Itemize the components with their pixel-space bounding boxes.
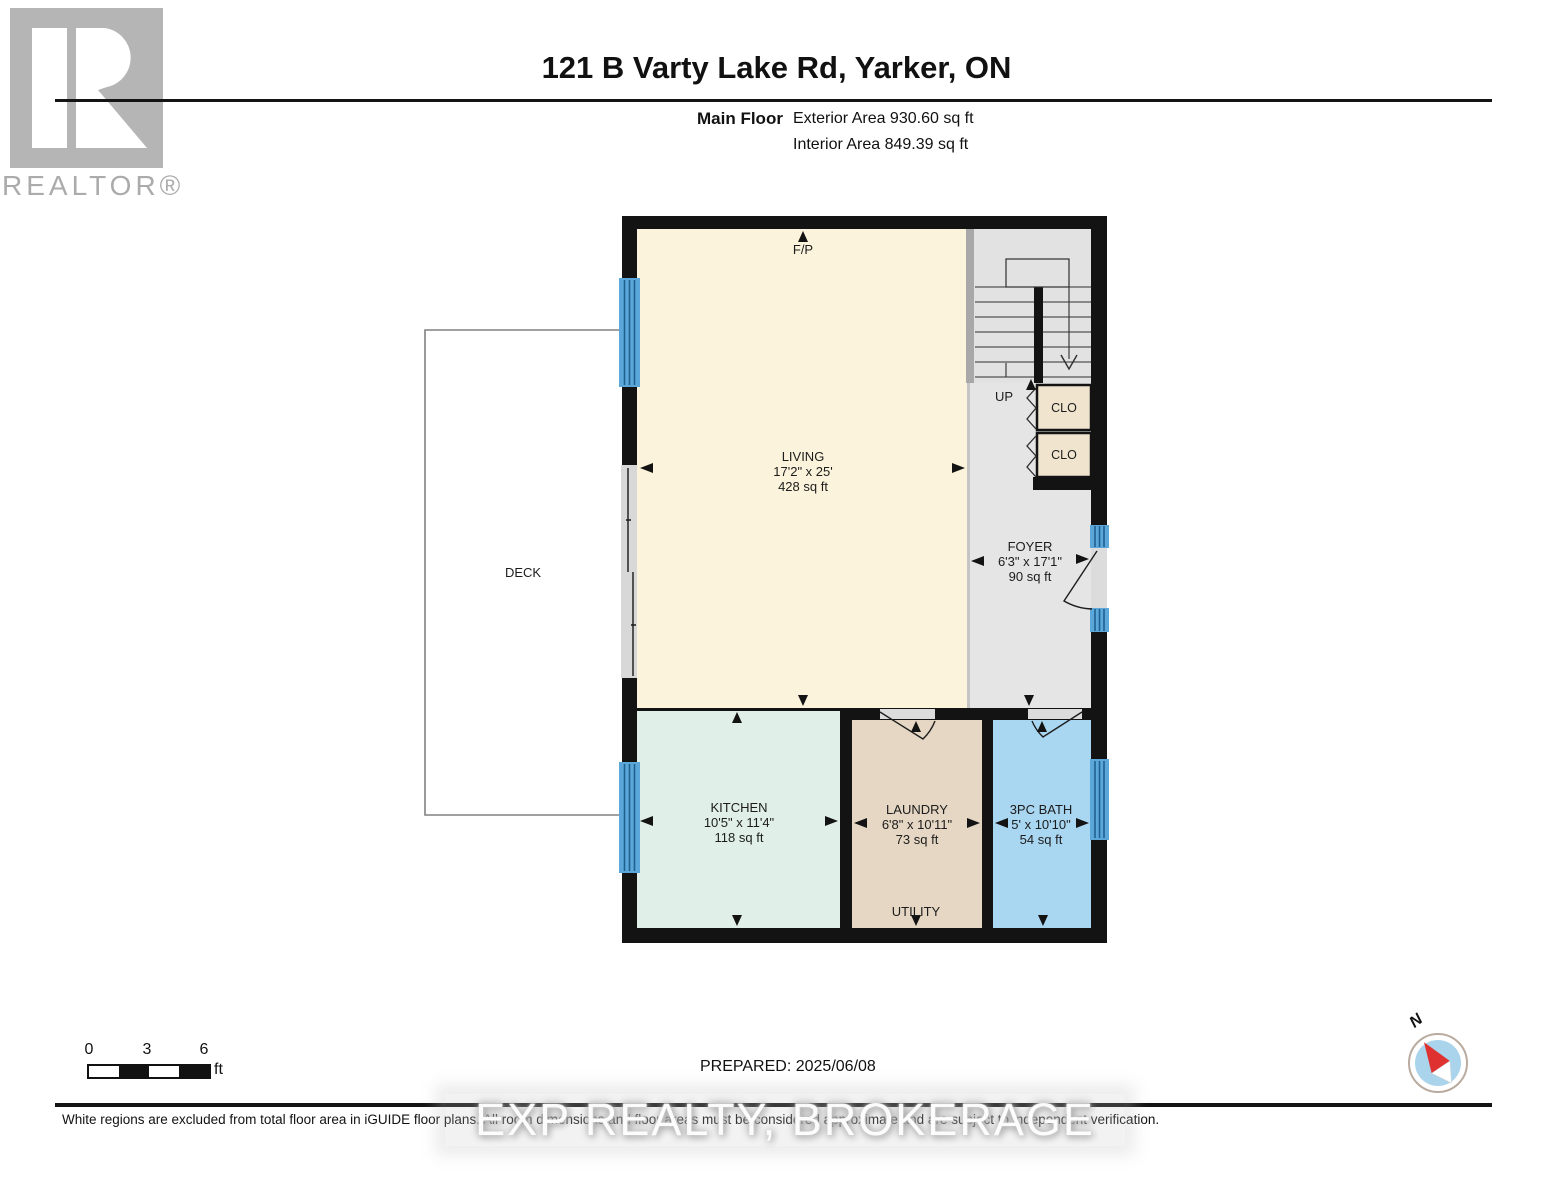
wall-kitchen-laundry: [840, 708, 852, 940]
interior-area-text: Interior Area 849.39 sq ft: [793, 136, 968, 154]
floor-label: Main Floor: [697, 109, 783, 129]
living-foyer-divider: [967, 383, 970, 708]
wall-top: [622, 216, 1107, 229]
scale-segment: [89, 1066, 119, 1077]
closet-1-label: CLO: [1051, 401, 1077, 415]
prepared-date: PREPARED: 2025/06/08: [700, 1058, 876, 1076]
kitchen-label: KITCHEN: [710, 800, 767, 815]
living-dims: 17'2" x 25': [773, 464, 832, 479]
foyer-dims: 6'3" x 17'1": [998, 554, 1062, 569]
closet-2-label: CLO: [1051, 448, 1077, 462]
fireplace-label: F/P: [793, 242, 813, 257]
brokerage-watermark: EXP REALTY, BROKERAGE: [445, 1094, 1125, 1146]
realtor-logo: [10, 8, 163, 168]
bath-dims: 5' x 10'10": [1011, 817, 1071, 832]
scale-tick-3: 3: [137, 1041, 157, 1059]
laundry-label: LAUNDRY: [886, 802, 948, 817]
living-area-text: 428 sq ft: [778, 479, 828, 494]
scale-segment: [149, 1066, 179, 1077]
kitchen-area-text: 118 sq ft: [715, 830, 764, 845]
laundry-area-text: 73 sq ft: [896, 832, 939, 847]
sliding-door-deck: [621, 465, 637, 678]
scale-tick-0: 0: [79, 1041, 99, 1059]
scale-segment: [119, 1066, 149, 1077]
compass-north-label: N: [1407, 1011, 1427, 1032]
scale-bar: [87, 1064, 211, 1079]
utility-label: UTILITY: [892, 904, 941, 919]
living-kitchen-boundary: [637, 708, 840, 711]
closets: [1027, 385, 1091, 477]
foyer-area-text: 90 sq ft: [1009, 569, 1052, 584]
realtor-logo-graphic: [10, 8, 163, 168]
laundry-dims: 6'8" x 10'11": [882, 817, 953, 832]
wall-stair-center: [1034, 287, 1043, 383]
compass-icon: N: [1398, 1005, 1480, 1100]
deck-label: DECK: [505, 565, 541, 580]
kitchen-dims: 10'5" x 11'4": [704, 815, 775, 830]
scale-tick-6: 6: [194, 1041, 214, 1059]
bath-area-text: 54 sq ft: [1020, 832, 1063, 847]
exterior-area-text: Exterior Area 930.60 sq ft: [793, 110, 974, 128]
bath-label: 3PC BATH: [1010, 802, 1073, 817]
wall-bottom: [622, 928, 1107, 943]
stairs-up-label: UP: [995, 389, 1013, 404]
page-title: 121 B Varty Lake Rd, Yarker, ON: [0, 50, 1553, 86]
realtor-logo-wordmark: REALTOR®: [2, 170, 187, 202]
scale-unit-label: ft: [214, 1061, 223, 1079]
title-divider-line: [55, 99, 1492, 102]
living-label: LIVING: [782, 449, 825, 464]
wall-laundry-bath: [982, 708, 993, 940]
compass: N: [1398, 1005, 1480, 1105]
foyer-label: FOYER: [1008, 539, 1053, 554]
scale-segment: [179, 1066, 209, 1077]
wall-closet-bottom: [1033, 477, 1107, 490]
living-stairs-divider: [966, 229, 974, 383]
floor-plan: F/P LIVING 17'2" x 25' 428 sq ft KITCHEN…: [390, 205, 1120, 955]
